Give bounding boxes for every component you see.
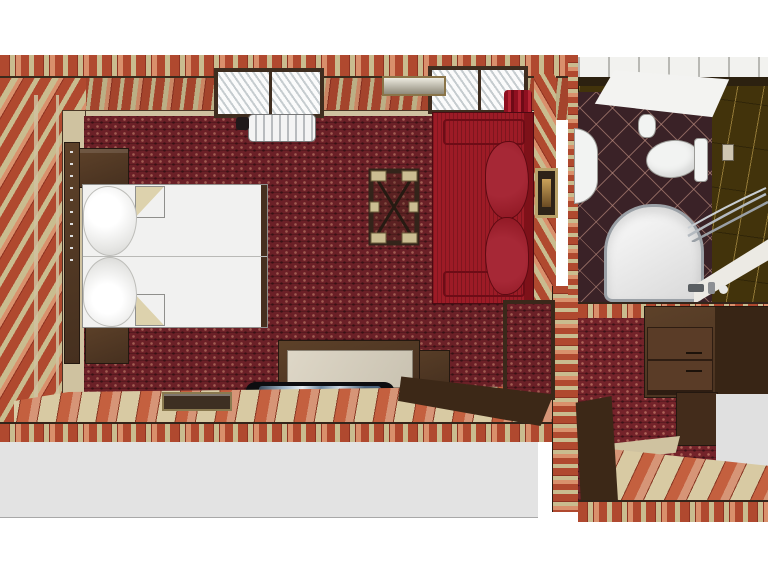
faucet-cup	[719, 285, 728, 294]
shower-glass-arcs	[686, 186, 768, 242]
duvet-fold-bottom	[135, 294, 165, 326]
pillow-2	[83, 257, 137, 327]
wall-switch	[722, 144, 734, 161]
wall-shelf	[382, 76, 446, 96]
west-wall-pilaster-edge2	[56, 95, 59, 415]
drawer-handle-2	[686, 370, 702, 372]
luggage-rack-frame	[368, 168, 420, 246]
sofa-cushion-1	[485, 141, 529, 219]
nightstand-bottom	[85, 322, 129, 364]
wardrobe-deep-side	[715, 307, 768, 399]
luggage-tray	[162, 392, 232, 411]
window-2-mullion	[478, 70, 481, 110]
window-1	[214, 68, 324, 118]
sofa-cushion-2	[485, 217, 529, 295]
bath-top-wall	[578, 57, 768, 77]
divider-wall-column	[552, 286, 580, 512]
duvet-fold-top	[135, 186, 165, 218]
outside-gray-floor	[0, 442, 538, 518]
pillow-1	[83, 186, 137, 256]
hall-bottom-band	[578, 500, 768, 522]
sofa	[432, 112, 534, 304]
wardrobe	[644, 306, 768, 398]
nightstand-top	[79, 148, 129, 188]
south-wall-band	[0, 422, 570, 442]
window-1-mullion	[269, 72, 272, 114]
radiator-valve	[236, 117, 249, 130]
luggage-rack	[368, 168, 420, 246]
wardrobe-lower-panel	[676, 392, 718, 446]
headboard-controls	[70, 151, 73, 271]
bed-headboard	[64, 142, 80, 364]
washbasin	[574, 128, 598, 204]
picture-art	[542, 179, 551, 207]
faucet-spout	[688, 284, 704, 292]
floorplan-render	[0, 0, 768, 576]
faucet-bottle	[708, 282, 715, 294]
toilet-tank	[694, 138, 708, 182]
radiator	[248, 114, 316, 142]
carpeted-partition	[503, 300, 555, 400]
faucet-set	[686, 280, 730, 296]
toilet-paper-roll	[638, 114, 656, 138]
west-wall-pilaster-edge	[34, 95, 38, 415]
bed	[82, 184, 268, 328]
wardrobe-drawers	[647, 327, 713, 395]
drawer-handle-1	[686, 352, 702, 354]
picture-frame	[535, 168, 558, 218]
